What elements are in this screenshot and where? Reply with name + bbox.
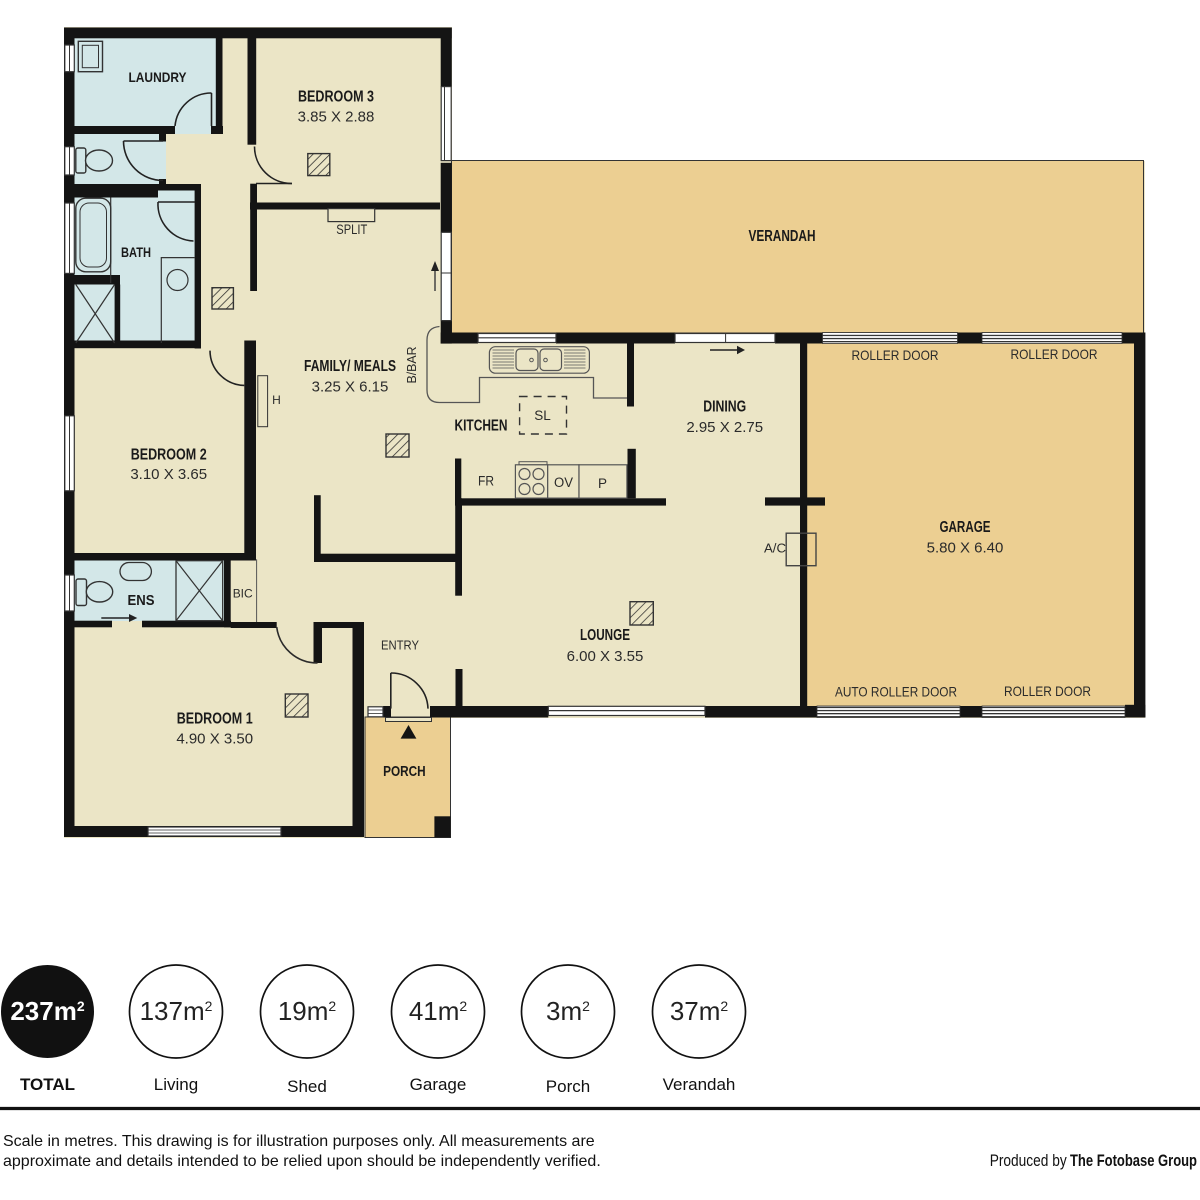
svg-text:3.10 X 3.65: 3.10 X 3.65 bbox=[130, 466, 207, 483]
svg-text:3.85 X 2.88: 3.85 X 2.88 bbox=[298, 109, 375, 126]
svg-text:5.80 X 6.40: 5.80 X 6.40 bbox=[927, 540, 1004, 557]
svg-text:AUTO ROLLER DOOR: AUTO ROLLER DOOR bbox=[835, 684, 957, 700]
svg-text:Living: Living bbox=[154, 1075, 198, 1094]
svg-text:BEDROOM 2: BEDROOM 2 bbox=[131, 447, 207, 464]
svg-text:TOTAL: TOTAL bbox=[20, 1075, 75, 1094]
svg-text:BEDROOM 1: BEDROOM 1 bbox=[177, 711, 253, 728]
svg-text:approximate and details intend: approximate and details intended to be r… bbox=[3, 1153, 601, 1170]
svg-text:OV: OV bbox=[554, 475, 573, 490]
svg-text:The Fotobase Group: The Fotobase Group bbox=[1070, 1151, 1197, 1170]
svg-text:Produced by: Produced by bbox=[990, 1151, 1067, 1170]
svg-text:137m2: 137m2 bbox=[140, 996, 213, 1026]
svg-text:Garage: Garage bbox=[410, 1075, 467, 1094]
svg-text:237m2: 237m2 bbox=[10, 996, 85, 1026]
svg-text:FR: FR bbox=[478, 474, 494, 489]
svg-text:ROLLER DOOR: ROLLER DOOR bbox=[1011, 346, 1098, 362]
svg-text:Porch: Porch bbox=[546, 1077, 590, 1096]
svg-text:PORCH: PORCH bbox=[383, 763, 426, 780]
svg-text:Shed: Shed bbox=[287, 1077, 327, 1096]
svg-text:ROLLER DOOR: ROLLER DOOR bbox=[852, 347, 939, 363]
svg-text:P: P bbox=[598, 476, 607, 491]
svg-text:19m2: 19m2 bbox=[278, 996, 337, 1026]
svg-text:DINING: DINING bbox=[703, 399, 746, 416]
svg-text:4.90 X 3.50: 4.90 X 3.50 bbox=[176, 731, 253, 748]
svg-text:KITCHEN: KITCHEN bbox=[455, 418, 508, 435]
svg-text:41m2: 41m2 bbox=[409, 996, 468, 1026]
svg-text:FAMILY/ MEALS: FAMILY/ MEALS bbox=[304, 358, 396, 375]
svg-text:Verandah: Verandah bbox=[663, 1075, 736, 1094]
svg-text:37m2: 37m2 bbox=[670, 996, 729, 1026]
svg-text:LOUNGE: LOUNGE bbox=[580, 627, 630, 644]
svg-text:A/C: A/C bbox=[764, 541, 786, 556]
svg-text:BATH: BATH bbox=[121, 244, 151, 260]
svg-text:ENTRY: ENTRY bbox=[381, 639, 420, 653]
svg-text:BEDROOM 3: BEDROOM 3 bbox=[298, 89, 374, 106]
svg-text:6.00 X 3.55: 6.00 X 3.55 bbox=[567, 648, 644, 665]
svg-text:ENS: ENS bbox=[128, 592, 155, 609]
svg-text:VERANDAH: VERANDAH bbox=[749, 228, 816, 245]
svg-text:Scale in metres. This drawing: Scale in metres. This drawing is for ill… bbox=[3, 1133, 595, 1150]
svg-text:3.25 X 6.15: 3.25 X 6.15 bbox=[312, 379, 389, 396]
svg-text:B/BAR: B/BAR bbox=[404, 347, 419, 384]
svg-text:ROLLER DOOR: ROLLER DOOR bbox=[1004, 683, 1091, 699]
svg-text:GARAGE: GARAGE bbox=[940, 519, 991, 536]
svg-text:2.95 X 2.75: 2.95 X 2.75 bbox=[686, 419, 763, 436]
svg-text:SL: SL bbox=[534, 408, 551, 423]
svg-text:LAUNDRY: LAUNDRY bbox=[129, 69, 188, 85]
svg-text:SPLIT: SPLIT bbox=[336, 222, 367, 237]
svg-text:BIC: BIC bbox=[233, 587, 253, 601]
svg-text:H: H bbox=[272, 393, 281, 407]
